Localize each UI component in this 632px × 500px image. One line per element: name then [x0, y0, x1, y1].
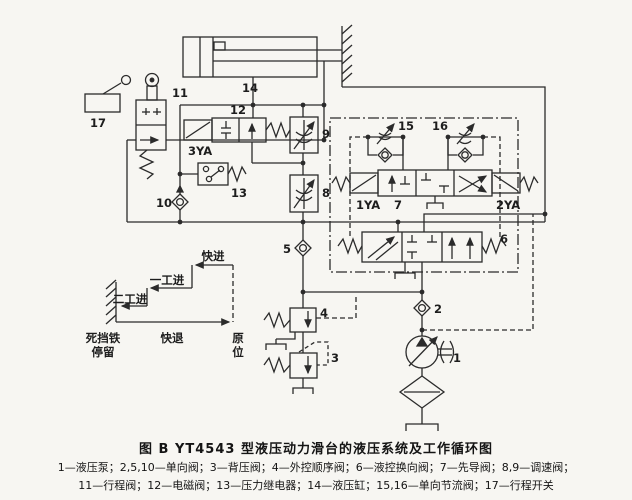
pressure-relay-13 [180, 163, 246, 185]
limit-switch-17 [85, 76, 131, 113]
cycle-home-1: 原 [232, 331, 244, 345]
figure-legend-line2: 11—行程阀；12—电磁阀；13—压力继电器；14—液压缸；15,16—单向节流… [0, 477, 632, 493]
back-pressure-valve-3 [264, 342, 328, 394]
label-14: 14 [242, 81, 258, 95]
label-4: 4 [320, 306, 328, 320]
fixed-wall-hatching [342, 25, 352, 82]
main-directional-valve-6 [338, 214, 545, 279]
label-3ya: 3YA [188, 144, 212, 158]
label-1ya: 1YA [356, 198, 380, 212]
cycle-rapid-advance: 快进 [201, 249, 225, 263]
label-1: 1 [453, 351, 461, 365]
speed-valve-9 [290, 117, 318, 153]
valve-assembly-frame [330, 118, 518, 272]
figure-legend-line1: 1—液压泵；2,5,10—单向阀；3—背压阀；4—外控顺序阀；6—液控换向阀；7… [0, 459, 632, 475]
cycle-first-feed: 一工进 [150, 273, 185, 287]
sequence-valve-4 [264, 294, 356, 353]
hydraulic-diagram-figure: 14 11 17 12 3YA 13 10 9 8 5 4 3 15 16 1Y… [0, 0, 632, 500]
label-12: 12 [230, 103, 246, 117]
label-2ya: 2YA [496, 198, 520, 212]
suction-filter [400, 368, 444, 431]
label-15: 15 [398, 119, 414, 133]
label-10: 10 [156, 196, 172, 210]
label-7: 7 [394, 198, 402, 212]
hydraulic-pump-1 [406, 336, 454, 368]
pressure-feed-lines [303, 262, 422, 300]
label-17: 17 [90, 116, 106, 130]
label-8: 8 [322, 186, 330, 200]
one-way-throttle-15 [350, 124, 403, 238]
label-13: 13 [231, 186, 247, 200]
cycle-home-2: 位 [232, 345, 244, 359]
cycle-dead-stop-1: 死挡铁 [86, 331, 121, 345]
figure-caption: 图 B YT4543 型液压动力滑台的液压系统及工作循环图 [0, 438, 632, 457]
label-16: 16 [432, 119, 448, 133]
label-3: 3 [331, 351, 339, 365]
solenoid-3ya [184, 120, 212, 140]
label-11: 11 [172, 86, 188, 100]
cycle-second-feed: 二工进 [113, 292, 148, 306]
check-valve-5 [295, 240, 311, 308]
hydraulic-cylinder-14 [183, 37, 342, 77]
check-valve-10 [172, 105, 188, 222]
label-9: 9 [322, 127, 330, 141]
cycle-dead-stop-2: 停留 [92, 345, 115, 359]
label-2: 2 [434, 302, 442, 316]
label-5: 5 [283, 242, 291, 256]
speed-valve-8 [290, 175, 318, 212]
cycle-rapid-return: 快退 [160, 331, 184, 345]
label-6: 6 [500, 232, 508, 246]
circuit-canvas: 14 11 17 12 3YA 13 10 9 8 5 4 3 15 16 1Y… [0, 0, 632, 432]
